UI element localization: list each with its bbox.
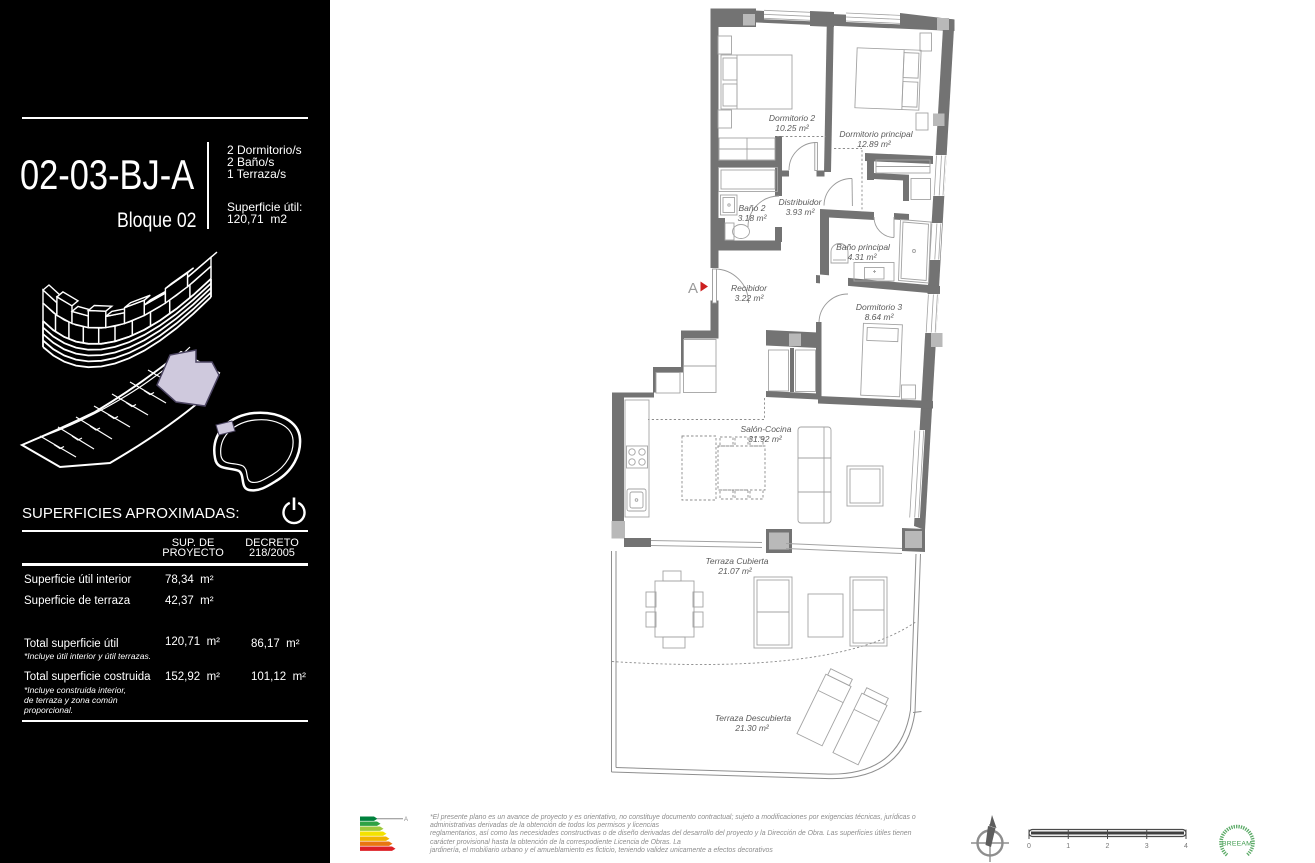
svg-text:1: 1 (1066, 843, 1070, 850)
svg-text:3.22 m²: 3.22 m² (735, 293, 765, 303)
svg-text:21.30 m²: 21.30 m² (734, 723, 770, 733)
svg-text:BREEAM: BREEAM (1222, 841, 1252, 848)
svg-text:21.07 m²: 21.07 m² (717, 566, 753, 576)
svg-text:Dormitorio 3: Dormitorio 3 (856, 302, 903, 312)
svg-text:3.93 m²: 3.93 m² (786, 207, 816, 217)
svg-text:4.31 m²: 4.31 m² (848, 252, 878, 262)
svg-text:Recibidor: Recibidor (731, 283, 768, 293)
svg-text:A: A (688, 280, 698, 297)
svg-text:Dormitorio 2: Dormitorio 2 (769, 113, 816, 123)
svg-text:Terraza Descubierta: Terraza Descubierta (715, 713, 791, 723)
svg-text:0: 0 (1027, 843, 1031, 850)
svg-text:Salón-Cocina: Salón-Cocina (740, 424, 791, 434)
svg-text:A: A (404, 817, 408, 823)
svg-text:Terraza Cubierta: Terraza Cubierta (706, 556, 769, 566)
svg-text:Distribuidor: Distribuidor (779, 197, 823, 207)
svg-text:10.25 m²: 10.25 m² (775, 123, 810, 133)
svg-text:Baño 2: Baño 2 (739, 203, 766, 213)
svg-text:3.18 m²: 3.18 m² (738, 213, 768, 223)
svg-text:31.92 m²: 31.92 m² (748, 434, 783, 444)
svg-text:Baño principal: Baño principal (836, 242, 891, 252)
svg-text:8.64 m²: 8.64 m² (865, 312, 895, 322)
svg-text:4: 4 (1184, 843, 1188, 850)
svg-text:2: 2 (1106, 843, 1110, 850)
svg-text:3: 3 (1145, 843, 1149, 850)
svg-text:12.89 m²: 12.89 m² (857, 139, 892, 149)
svg-text:Dormitorio principal: Dormitorio principal (839, 129, 913, 139)
